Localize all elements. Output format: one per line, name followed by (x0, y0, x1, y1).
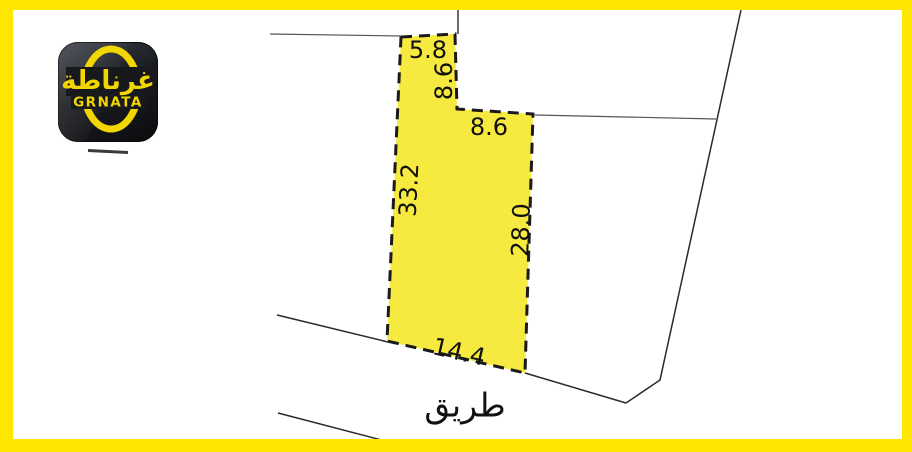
frame-right (902, 0, 912, 452)
dim-label-left: 33.2 (394, 163, 425, 218)
boundary-line-mid-horizontal (535, 115, 716, 119)
frame-left (0, 0, 13, 452)
dim-label-top: 5.8 (409, 36, 447, 64)
road-edge-top-left (277, 315, 388, 342)
dim-label-step-top: 8.6 (470, 113, 508, 141)
boundary-line-right-slanted (626, 10, 741, 403)
plot-map-page: 5.8 8.6 8.6 33.2 28.0 14.4 طريق غرناطة G… (0, 0, 912, 452)
frame-bottom (0, 439, 912, 452)
logo-arabic-text: غرناطة (61, 66, 155, 96)
dim-label-right: 28.0 (506, 203, 536, 257)
frame-top (0, 0, 912, 10)
grnata-logo: غرناطة GRNATA (58, 42, 158, 142)
boundary-line-top-left (270, 34, 401, 36)
dim-label-neck-right: 8.6 (430, 62, 458, 100)
logo-art: غرناطة GRNATA (58, 42, 158, 142)
road-label: طريق (424, 386, 505, 426)
logo-latin-text: GRNATA (73, 95, 143, 111)
road-edge-top-right (525, 373, 626, 403)
